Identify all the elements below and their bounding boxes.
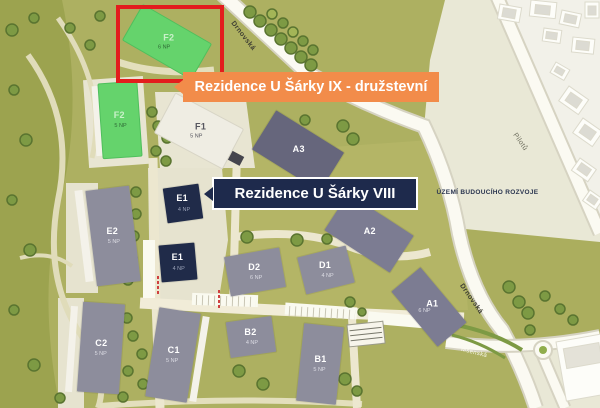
building-label: D1: [319, 261, 331, 270]
building-e1-upper[interactable]: E1 4 NP: [163, 184, 204, 224]
building-floors: 5 NP: [190, 133, 202, 139]
building-b1[interactable]: B1 5 NP: [296, 323, 344, 405]
building-label: B2: [244, 328, 256, 337]
building-c2[interactable]: C2 5 NP: [77, 302, 125, 395]
building-label: A2: [364, 227, 376, 236]
building-label: E1: [172, 253, 184, 262]
building-floors: 5 NP: [166, 358, 178, 364]
building-label: F1: [196, 122, 207, 131]
building-label: D2: [248, 263, 260, 272]
building-floors: 5 NP: [94, 351, 106, 357]
building-label: A3: [293, 145, 305, 154]
building-f2-left[interactable]: F2 5 NP: [98, 82, 141, 158]
building-floors: 4 NP: [172, 266, 184, 272]
building-floors: 5 NP: [114, 123, 126, 129]
building-floors: 6 NP: [418, 308, 430, 314]
building-floors: 5 NP: [313, 367, 325, 373]
building-e1-lower[interactable]: E1 4 NP: [158, 243, 197, 283]
building-b2[interactable]: B2 4 NP: [226, 316, 277, 358]
building-label: F2: [114, 111, 125, 120]
building-label: C2: [95, 339, 107, 348]
building-label: B1: [314, 355, 326, 364]
building-floors: 4 NP: [321, 273, 333, 279]
building-label: E2: [107, 227, 119, 236]
building-floors: 4 NP: [178, 207, 190, 213]
banner-rezidence-ix[interactable]: Rezidence U Šárky IX - družstevní: [183, 72, 439, 102]
building-floors: 5 NP: [108, 239, 120, 245]
site-plan: F2 6 NP F2 5 NP F1 5 NP A3 E2 5 NP E1 4 …: [0, 0, 600, 408]
building-floors: 6 NP: [250, 275, 262, 281]
building-floors: 4 NP: [246, 340, 258, 346]
building-label: C1: [168, 346, 180, 355]
sport-court: [347, 321, 385, 347]
future-development-label: ÚZEMÍ BUDOUCÍHO ROZVOJE: [430, 189, 545, 196]
banner-rezidence-viii[interactable]: Rezidence U Šárky VIII: [212, 177, 418, 210]
building-label: E1: [177, 194, 189, 203]
